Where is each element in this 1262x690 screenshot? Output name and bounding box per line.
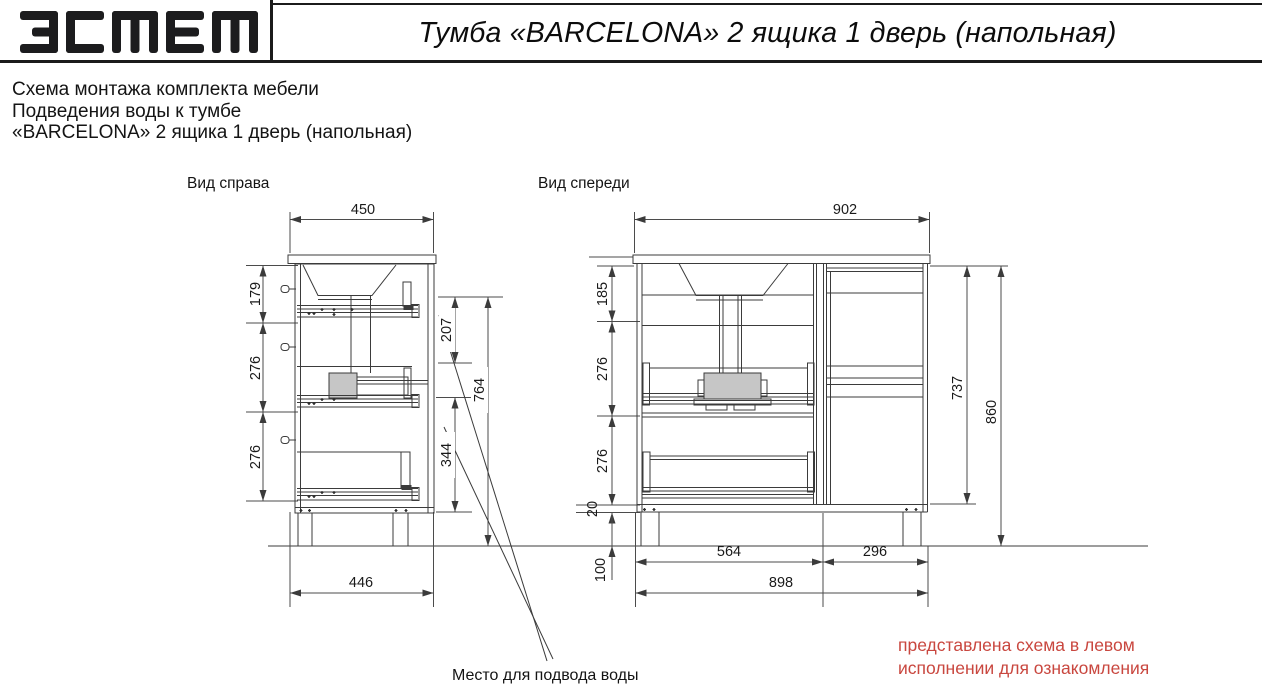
dim-450: 450 (351, 202, 375, 218)
right-view-drawing: 450 179 276 276 207 344 764 446 (246, 202, 553, 661)
dim-20: 20 (585, 501, 601, 517)
front-view-carcass (633, 255, 930, 512)
leg (903, 512, 921, 546)
right-view-legs (298, 509, 408, 546)
dim-446: 446 (349, 575, 373, 591)
dim-207: 207 (439, 318, 455, 342)
knob-icon (281, 286, 289, 293)
sink-basin-front (679, 264, 788, 296)
dim-276: 276 (248, 356, 264, 380)
dim-344: 344 (439, 443, 455, 467)
dim-100: 100 (593, 558, 609, 582)
page: Тумба «BARCELONA» 2 ящика 1 дверь (напол… (0, 0, 1262, 690)
front-view-door (827, 268, 924, 505)
countertop-side (288, 255, 436, 264)
dim-276: 276 (248, 445, 264, 469)
front-view-legs (641, 508, 921, 546)
front-view-dimension-lines (612, 220, 1001, 594)
right-view-drawer-2 (297, 367, 428, 408)
dim-737: 737 (950, 376, 966, 400)
technical-drawing: 450 179 276 276 207 344 764 446 (0, 0, 1262, 690)
front-view-drawer-2 (642, 413, 815, 498)
right-view-dimension-labels: 450 179 276 276 207 344 764 446 (248, 202, 488, 591)
knob-icon (281, 344, 289, 351)
cabinet-body-side (295, 264, 434, 513)
dim-185: 185 (595, 282, 611, 306)
dim-296: 296 (863, 544, 887, 560)
dim-179: 179 (248, 282, 264, 306)
right-view-drawer-3 (297, 452, 419, 501)
siphon-front (704, 373, 761, 399)
front-view-extension-lines (576, 212, 1008, 607)
water-leader-lines (439, 315, 553, 661)
right-view-basin (303, 265, 396, 373)
front-view-basin (642, 264, 814, 374)
dim-898: 898 (769, 575, 793, 591)
leg (393, 513, 408, 546)
dim-564: 564 (717, 544, 741, 560)
knob-icon (281, 437, 289, 444)
right-view-dimension-lines (263, 220, 488, 594)
leg (298, 513, 312, 546)
leg (641, 512, 659, 546)
dim-276: 276 (595, 357, 611, 381)
sink-basin-side (303, 265, 396, 296)
dim-860: 860 (984, 400, 1000, 424)
dim-902: 902 (833, 202, 857, 218)
right-view-extension-lines (246, 212, 503, 607)
countertop-front (633, 255, 930, 264)
dim-764: 764 (472, 378, 488, 402)
dim-276: 276 (595, 449, 611, 473)
drawer-knobs (281, 286, 296, 444)
siphon-side (329, 373, 357, 398)
